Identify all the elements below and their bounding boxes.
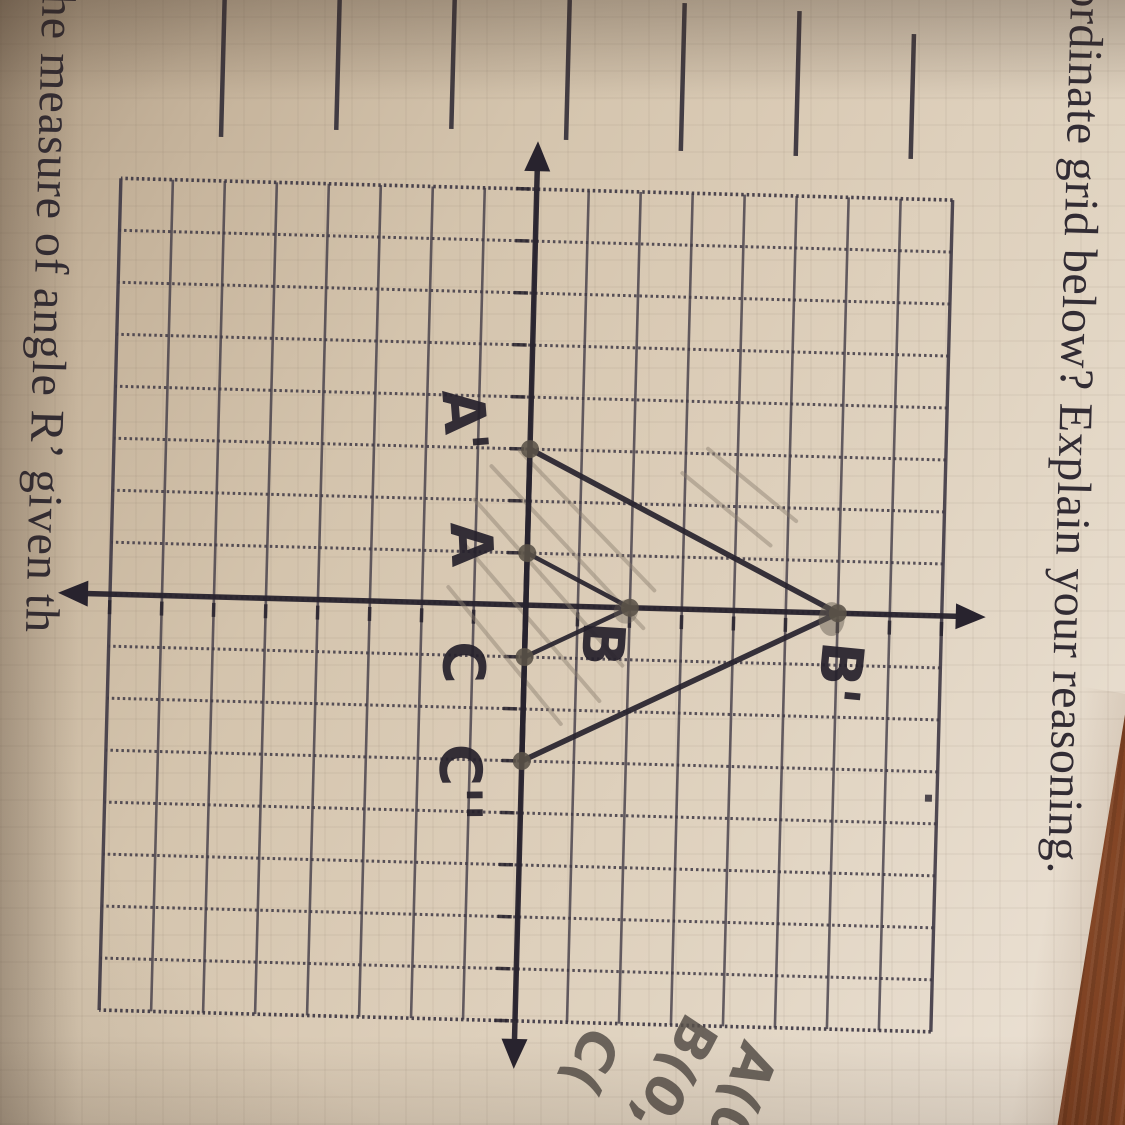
point-label-C'': C'' — [426, 743, 495, 822]
stray-speck — [925, 795, 932, 802]
coordinate-grid-figure: A'B'C''ABC — [0, 0, 1125, 1125]
vertex-dot-A — [518, 544, 536, 562]
ruled-answer-lines — [221, 0, 915, 159]
point-label-A': A' — [428, 386, 501, 454]
point-label-C: C — [429, 640, 498, 684]
point-label-B': B' — [803, 639, 877, 707]
worksheet-sheet: ordinate grid below? Explain your reason… — [0, 0, 1125, 1125]
y-axis — [58, 580, 986, 630]
point-label-B: B — [568, 620, 639, 668]
pencil-marks — [443, 442, 941, 802]
point-label-A: A — [436, 520, 506, 568]
vertex-dot-C'' — [513, 752, 531, 770]
photo-frame: ordinate grid below? Explain your reason… — [0, 0, 1125, 1125]
vertex-dot-C — [515, 648, 533, 666]
